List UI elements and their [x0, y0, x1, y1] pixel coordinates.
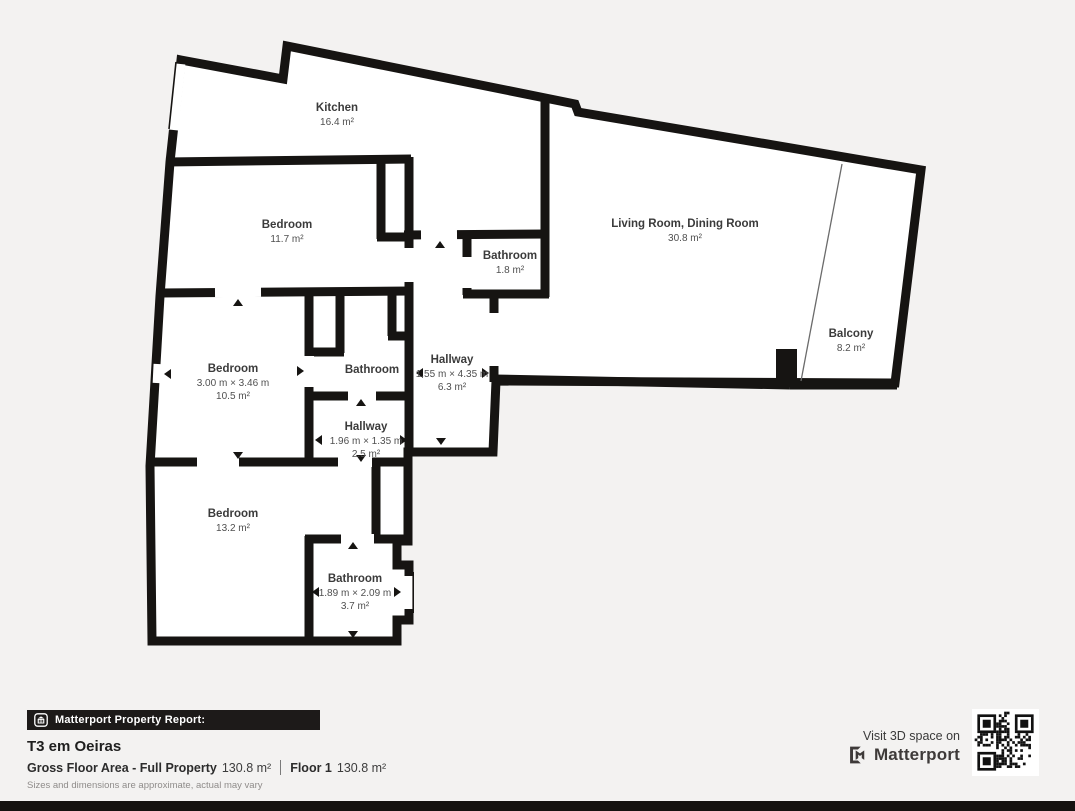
property-title: T3 em Oeiras: [27, 738, 121, 755]
room-label-hallway-small-dims: 1.96 m × 1.35 m: [330, 436, 403, 447]
room-label-hallway-main-dims: 1.55 m × 4.35 m: [416, 369, 489, 380]
report-header-bar: Matterport Property Report:: [27, 710, 320, 730]
room-label-bathroom-bottom-area: 3.7 m²: [341, 601, 370, 612]
room-label-bathroom-mid-name: Bathroom: [345, 364, 399, 376]
floor-value: 130.8 m²: [337, 761, 386, 775]
room-label-bedroom-bottom-area: 13.2 m²: [216, 523, 251, 534]
room-label-hallway-main-area: 6.3 m²: [438, 382, 467, 393]
matterport-wordmark: Matterport: [874, 745, 960, 765]
qr-code: [972, 709, 1039, 776]
visit-3d-block: Visit 3D space on Matterport: [760, 729, 960, 765]
room-label-bedroom-mid-name: Bedroom: [208, 363, 258, 375]
room-label-balcony-area: 8.2 m²: [837, 343, 866, 354]
room-label-bathroom-bottom-name: Bathroom: [328, 573, 382, 585]
stats-divider: [280, 760, 281, 775]
floor-plan: Kitchen 16.4 m² Bedroom 11.7 m² Bathroom…: [0, 0, 1075, 811]
room-label-hallway-small-area: 2.5 m²: [352, 449, 381, 460]
room-label-bedroom-bottom-name: Bedroom: [208, 508, 258, 520]
gross-floor-area-label: Gross Floor Area - Full Property: [27, 761, 217, 775]
room-label-bedroom-top-area: 11.7 m²: [270, 234, 304, 245]
matterport-logo-icon: [848, 745, 868, 765]
room-label-living-name: Living Room, Dining Room: [611, 218, 759, 230]
room-label-bathroom-small-area: 1.8 m²: [496, 265, 525, 276]
room-label-kitchen-area: 16.4 m²: [320, 117, 355, 128]
room-label-living-area: 30.8 m²: [668, 233, 703, 244]
area-stats: Gross Floor Area - Full Property 130.8 m…: [27, 760, 386, 775]
floor-label: Floor 1: [290, 761, 332, 775]
visit-3d-label: Visit 3D space on: [760, 729, 960, 743]
room-label-hallway-main-name: Hallway: [431, 354, 474, 366]
room-label-bedroom-mid-dims: 3.00 m × 3.46 m: [197, 378, 270, 389]
room-label-balcony-name: Balcony: [829, 328, 874, 340]
floor-plan-report-page: { "colors": { "background": "#f3f2f1", "…: [0, 0, 1075, 811]
building-icon: [34, 713, 48, 727]
report-header-label: Matterport Property Report:: [55, 714, 205, 726]
room-label-bedroom-top-name: Bedroom: [262, 219, 312, 231]
perimeter-walls: [150, 46, 921, 641]
bottom-black-bar: [0, 801, 1075, 811]
balcony-pillar: [776, 349, 797, 385]
room-label-bedroom-mid-area: 10.5 m²: [216, 391, 251, 402]
disclaimer-text: Sizes and dimensions are approximate, ac…: [27, 780, 263, 791]
room-label-hallway-small-name: Hallway: [345, 421, 388, 433]
gross-floor-area-value: 130.8 m²: [222, 761, 271, 775]
room-label-bathroom-small-name: Bathroom: [483, 250, 537, 262]
room-label-bathroom-bottom-dims: 1.89 m × 2.09 m: [319, 588, 392, 599]
room-label-kitchen-name: Kitchen: [316, 102, 358, 114]
